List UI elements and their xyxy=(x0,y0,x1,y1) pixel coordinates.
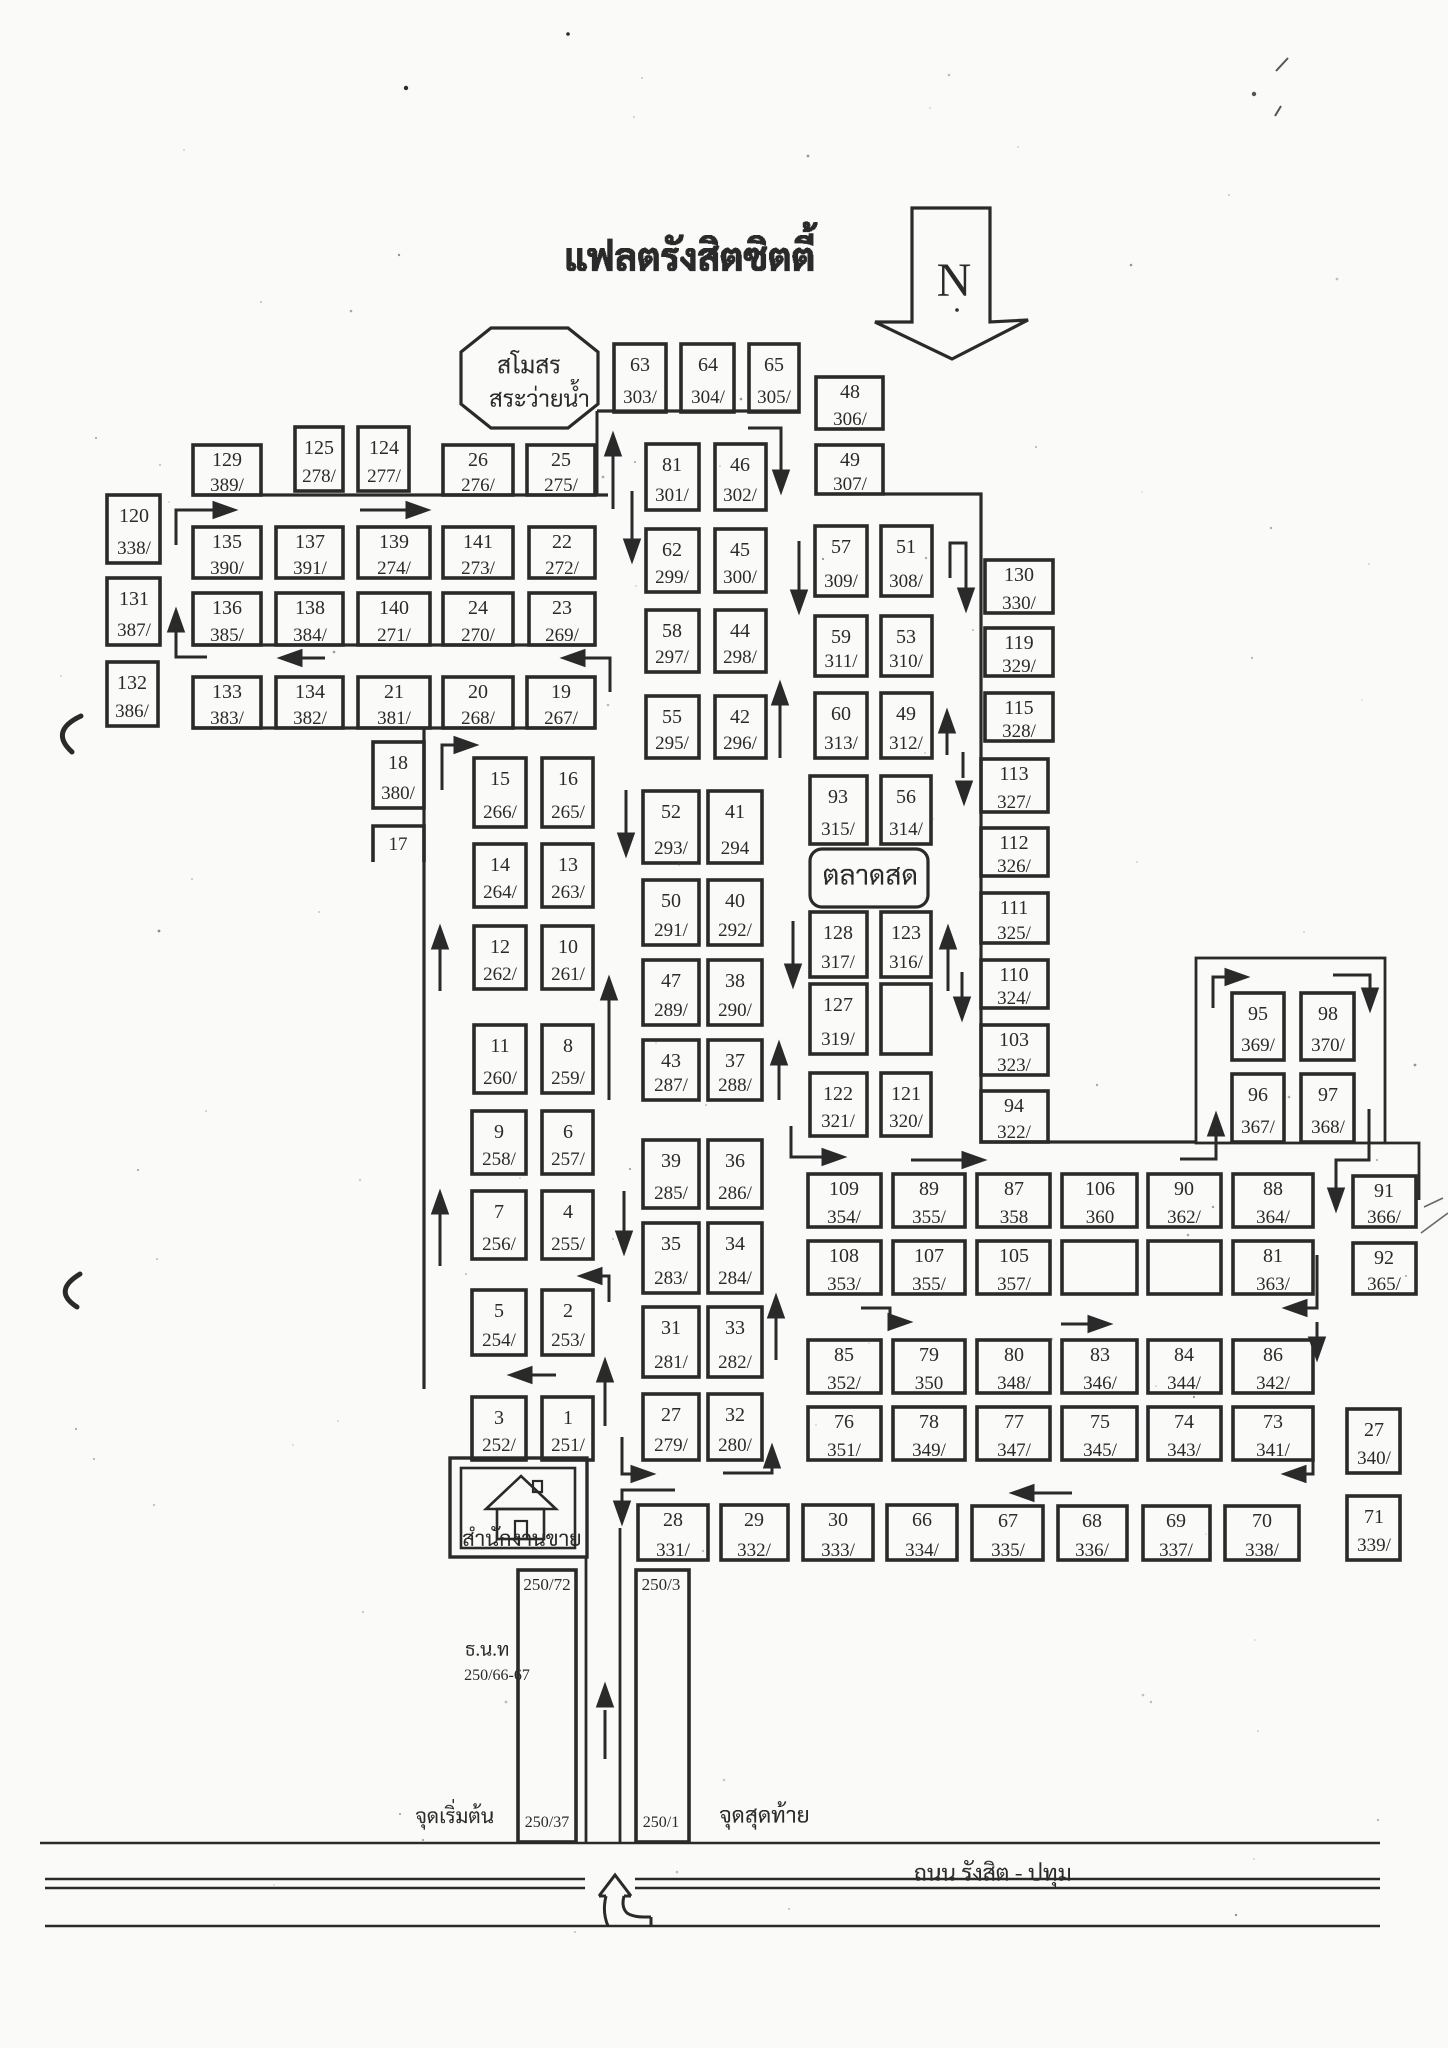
svg-text:130: 130 xyxy=(1004,564,1034,586)
svg-text:357/: 357/ xyxy=(997,1274,1032,1295)
svg-text:355/: 355/ xyxy=(912,1274,947,1295)
svg-text:386/: 386/ xyxy=(115,701,150,722)
svg-text:291/: 291/ xyxy=(654,920,689,941)
svg-text:298/: 298/ xyxy=(723,647,758,668)
svg-text:52: 52 xyxy=(661,801,681,823)
svg-text:91: 91 xyxy=(1374,1180,1394,1202)
svg-text:353/: 353/ xyxy=(827,1274,862,1295)
svg-text:284/: 284/ xyxy=(718,1268,753,1289)
svg-text:32: 32 xyxy=(725,1404,745,1426)
svg-text:382/: 382/ xyxy=(293,708,328,729)
svg-text:306/: 306/ xyxy=(833,409,868,430)
svg-text:295/: 295/ xyxy=(655,733,690,754)
svg-text:11: 11 xyxy=(490,1035,509,1057)
svg-text:312/: 312/ xyxy=(889,733,924,754)
svg-text:112: 112 xyxy=(999,832,1028,854)
svg-text:46: 46 xyxy=(730,454,750,476)
svg-text:24: 24 xyxy=(468,597,488,619)
svg-text:125: 125 xyxy=(304,437,334,459)
svg-text:250/3: 250/3 xyxy=(642,1575,681,1594)
svg-text:12: 12 xyxy=(490,936,510,958)
svg-text:90: 90 xyxy=(1174,1178,1194,1200)
svg-text:366/: 366/ xyxy=(1367,1207,1402,1228)
svg-text:250/1: 250/1 xyxy=(643,1814,679,1831)
svg-text:360: 360 xyxy=(1086,1207,1115,1228)
svg-text:113: 113 xyxy=(999,763,1028,785)
svg-text:369/: 369/ xyxy=(1241,1035,1276,1056)
svg-text:62: 62 xyxy=(662,539,682,561)
svg-text:299/: 299/ xyxy=(655,567,690,588)
svg-text:304/: 304/ xyxy=(691,387,726,408)
svg-text:6: 6 xyxy=(563,1121,573,1143)
svg-text:303/: 303/ xyxy=(623,387,658,408)
svg-text:106: 106 xyxy=(1085,1178,1115,1200)
svg-text:259/: 259/ xyxy=(551,1068,586,1089)
svg-text:78: 78 xyxy=(919,1411,939,1433)
svg-text:265/: 265/ xyxy=(551,802,586,823)
svg-text:346/: 346/ xyxy=(1083,1373,1118,1394)
svg-text:19: 19 xyxy=(551,681,571,703)
svg-text:115: 115 xyxy=(1004,697,1033,719)
svg-text:85: 85 xyxy=(834,1344,854,1366)
svg-text:9: 9 xyxy=(494,1121,504,1143)
svg-text:48: 48 xyxy=(840,381,860,403)
svg-text:80: 80 xyxy=(1004,1344,1024,1366)
svg-text:255/: 255/ xyxy=(551,1234,586,1255)
svg-text:83: 83 xyxy=(1090,1344,1110,1366)
svg-text:358: 358 xyxy=(1000,1207,1029,1228)
svg-text:120: 120 xyxy=(119,505,149,527)
svg-text:316/: 316/ xyxy=(889,952,924,973)
svg-text:300/: 300/ xyxy=(723,567,758,588)
svg-text:277/: 277/ xyxy=(367,466,402,487)
svg-text:34: 34 xyxy=(725,1233,745,1255)
svg-text:319/: 319/ xyxy=(821,1029,856,1050)
svg-text:58: 58 xyxy=(662,620,682,642)
svg-text:385/: 385/ xyxy=(210,625,245,646)
svg-text:328/: 328/ xyxy=(1002,721,1037,742)
svg-text:110: 110 xyxy=(999,964,1028,986)
svg-text:96: 96 xyxy=(1248,1084,1268,1106)
svg-text:270/: 270/ xyxy=(461,625,496,646)
svg-text:258/: 258/ xyxy=(482,1149,517,1170)
svg-text:30: 30 xyxy=(828,1509,848,1531)
svg-text:335/: 335/ xyxy=(991,1540,1026,1561)
svg-text:47: 47 xyxy=(661,970,681,992)
svg-text:81: 81 xyxy=(1263,1245,1283,1267)
svg-text:79: 79 xyxy=(919,1344,939,1366)
svg-text:97: 97 xyxy=(1318,1084,1338,1106)
svg-text:35: 35 xyxy=(661,1233,681,1255)
svg-text:68: 68 xyxy=(1082,1510,1102,1532)
svg-text:59: 59 xyxy=(831,626,851,648)
svg-text:273/: 273/ xyxy=(461,558,496,579)
svg-text:67: 67 xyxy=(998,1510,1018,1532)
svg-text:338/: 338/ xyxy=(117,538,152,559)
svg-text:8: 8 xyxy=(563,1035,573,1057)
svg-text:387/: 387/ xyxy=(117,620,152,641)
svg-text:323/: 323/ xyxy=(997,1055,1032,1076)
svg-text:325/: 325/ xyxy=(997,923,1032,944)
svg-text:86: 86 xyxy=(1263,1344,1283,1366)
svg-text:370/: 370/ xyxy=(1311,1035,1346,1056)
svg-text:339/: 339/ xyxy=(1357,1535,1392,1556)
svg-text:88: 88 xyxy=(1263,1178,1283,1200)
svg-text:60: 60 xyxy=(831,703,851,725)
svg-text:354/: 354/ xyxy=(827,1207,862,1228)
svg-text:N: N xyxy=(937,254,972,307)
svg-text:368/: 368/ xyxy=(1311,1117,1346,1138)
svg-text:384/: 384/ xyxy=(293,625,328,646)
svg-text:251/: 251/ xyxy=(551,1435,586,1456)
svg-text:283/: 283/ xyxy=(654,1268,689,1289)
svg-text:257/: 257/ xyxy=(551,1149,586,1170)
svg-text:138: 138 xyxy=(295,597,325,619)
svg-text:351/: 351/ xyxy=(827,1440,862,1461)
svg-text:84: 84 xyxy=(1174,1344,1194,1366)
svg-text:66: 66 xyxy=(912,1509,932,1531)
svg-text:391/: 391/ xyxy=(293,558,328,579)
svg-text:343/: 343/ xyxy=(1167,1440,1202,1461)
svg-text:367/: 367/ xyxy=(1241,1117,1276,1138)
svg-text:305/: 305/ xyxy=(757,387,792,408)
svg-text:43: 43 xyxy=(661,1050,681,1072)
svg-text:271/: 271/ xyxy=(377,625,412,646)
svg-text:10: 10 xyxy=(558,936,578,958)
svg-text:380/: 380/ xyxy=(381,783,416,804)
svg-text:293/: 293/ xyxy=(654,838,689,859)
svg-text:264/: 264/ xyxy=(483,882,518,903)
svg-text:65: 65 xyxy=(764,354,784,376)
svg-text:308/: 308/ xyxy=(889,571,924,592)
svg-text:33: 33 xyxy=(725,1317,745,1339)
svg-text:269/: 269/ xyxy=(545,625,580,646)
svg-text:131: 131 xyxy=(119,588,149,610)
svg-text:260/: 260/ xyxy=(483,1068,518,1089)
svg-text:281/: 281/ xyxy=(654,1352,689,1373)
svg-text:15: 15 xyxy=(490,768,510,790)
svg-text:25: 25 xyxy=(551,449,571,471)
svg-text:364/: 364/ xyxy=(1256,1207,1291,1228)
svg-text:17: 17 xyxy=(389,834,408,855)
svg-text:329/: 329/ xyxy=(1002,656,1037,677)
svg-text:313/: 313/ xyxy=(824,733,859,754)
svg-text:301/: 301/ xyxy=(655,485,690,506)
svg-text:141: 141 xyxy=(463,531,493,553)
svg-text:289/: 289/ xyxy=(654,1000,689,1021)
svg-text:140: 140 xyxy=(379,597,409,619)
svg-text:42: 42 xyxy=(730,706,750,728)
svg-text:63: 63 xyxy=(630,354,650,376)
svg-text:31: 31 xyxy=(661,1317,681,1339)
svg-text:56: 56 xyxy=(896,786,916,808)
svg-text:307/: 307/ xyxy=(833,474,868,495)
svg-text:51: 51 xyxy=(896,536,916,558)
svg-text:132: 132 xyxy=(117,672,147,694)
svg-text:49: 49 xyxy=(840,449,860,471)
svg-text:22: 22 xyxy=(552,531,572,553)
svg-text:266/: 266/ xyxy=(483,802,518,823)
svg-text:3: 3 xyxy=(494,1407,504,1429)
svg-text:36: 36 xyxy=(725,1150,745,1172)
svg-text:53: 53 xyxy=(896,626,916,648)
svg-text:267/: 267/ xyxy=(544,708,579,729)
svg-text:287/: 287/ xyxy=(654,1075,689,1096)
svg-text:75: 75 xyxy=(1090,1411,1110,1433)
svg-text:133: 133 xyxy=(212,681,242,703)
svg-text:250/72: 250/72 xyxy=(523,1575,570,1594)
svg-text:250/66-67: 250/66-67 xyxy=(464,1667,530,1684)
svg-text:381/: 381/ xyxy=(377,708,412,729)
svg-text:338/: 338/ xyxy=(1245,1540,1280,1561)
svg-text:268/: 268/ xyxy=(461,708,496,729)
svg-text:333/: 333/ xyxy=(821,1540,856,1561)
svg-text:108: 108 xyxy=(829,1245,859,1267)
svg-text:296/: 296/ xyxy=(723,733,758,754)
svg-text:127: 127 xyxy=(823,994,853,1016)
svg-text:37: 37 xyxy=(725,1050,745,1072)
svg-text:282/: 282/ xyxy=(718,1352,753,1373)
svg-text:352/: 352/ xyxy=(827,1373,862,1394)
svg-text:94: 94 xyxy=(1004,1095,1024,1117)
svg-text:55: 55 xyxy=(662,706,682,728)
svg-text:297/: 297/ xyxy=(655,647,690,668)
svg-text:294: 294 xyxy=(721,838,750,859)
svg-text:327/: 327/ xyxy=(997,792,1032,813)
svg-text:27: 27 xyxy=(1364,1419,1384,1441)
svg-text:272/: 272/ xyxy=(545,558,580,579)
svg-text:348/: 348/ xyxy=(997,1373,1032,1394)
svg-text:45: 45 xyxy=(730,539,750,561)
svg-text:70: 70 xyxy=(1252,1510,1272,1532)
svg-text:275/: 275/ xyxy=(544,475,579,496)
svg-text:69: 69 xyxy=(1166,1510,1186,1532)
svg-text:341/: 341/ xyxy=(1256,1440,1291,1461)
svg-text:23: 23 xyxy=(552,597,572,619)
svg-text:254/: 254/ xyxy=(482,1330,517,1351)
svg-text:5: 5 xyxy=(494,1300,504,1322)
svg-text:337/: 337/ xyxy=(1159,1540,1194,1561)
svg-text:261/: 261/ xyxy=(551,964,586,985)
svg-text:321/: 321/ xyxy=(821,1111,856,1132)
svg-text:124: 124 xyxy=(369,437,399,459)
svg-text:389/: 389/ xyxy=(210,475,245,496)
svg-text:14: 14 xyxy=(490,854,510,876)
svg-text:41: 41 xyxy=(725,801,745,823)
svg-text:77: 77 xyxy=(1004,1411,1024,1433)
svg-text:64: 64 xyxy=(698,354,718,376)
svg-text:330/: 330/ xyxy=(1002,593,1037,614)
svg-text:344/: 344/ xyxy=(1167,1373,1202,1394)
svg-text:49: 49 xyxy=(896,703,916,725)
svg-text:98: 98 xyxy=(1318,1003,1338,1025)
svg-text:309/: 309/ xyxy=(824,571,859,592)
svg-text:38: 38 xyxy=(725,970,745,992)
svg-text:73: 73 xyxy=(1263,1411,1283,1433)
svg-text:103: 103 xyxy=(999,1029,1029,1051)
svg-text:342/: 342/ xyxy=(1256,1373,1291,1394)
svg-text:280/: 280/ xyxy=(718,1435,753,1456)
svg-text:362/: 362/ xyxy=(1167,1207,1202,1228)
svg-text:27: 27 xyxy=(661,1404,681,1426)
svg-text:76: 76 xyxy=(834,1411,854,1433)
svg-text:50: 50 xyxy=(661,890,681,912)
svg-text:29: 29 xyxy=(744,1509,764,1531)
svg-text:345/: 345/ xyxy=(1083,1440,1118,1461)
svg-text:40: 40 xyxy=(725,890,745,912)
svg-text:81: 81 xyxy=(662,454,682,476)
svg-text:122: 122 xyxy=(823,1083,853,1105)
svg-text:326/: 326/ xyxy=(997,856,1032,877)
svg-text:340/: 340/ xyxy=(1357,1448,1392,1469)
svg-text:74: 74 xyxy=(1174,1411,1194,1433)
svg-text:262/: 262/ xyxy=(483,964,518,985)
svg-text:16: 16 xyxy=(558,768,578,790)
svg-text:137: 137 xyxy=(295,531,325,553)
svg-text:134: 134 xyxy=(295,681,325,703)
svg-text:92: 92 xyxy=(1374,1247,1394,1269)
svg-text:331/: 331/ xyxy=(656,1540,691,1561)
svg-text:365/: 365/ xyxy=(1367,1274,1402,1295)
svg-text:252/: 252/ xyxy=(482,1435,517,1456)
svg-text:107: 107 xyxy=(914,1245,944,1267)
svg-text:71: 71 xyxy=(1364,1506,1384,1528)
svg-text:105: 105 xyxy=(999,1245,1029,1267)
svg-text:322/: 322/ xyxy=(997,1122,1032,1143)
svg-text:20: 20 xyxy=(468,681,488,703)
svg-text:1: 1 xyxy=(563,1407,573,1429)
svg-text:315/: 315/ xyxy=(821,819,856,840)
svg-text:26: 26 xyxy=(468,449,488,471)
svg-text:111: 111 xyxy=(1000,897,1029,919)
svg-text:123: 123 xyxy=(891,922,921,944)
svg-text:263/: 263/ xyxy=(551,882,586,903)
svg-text:324/: 324/ xyxy=(997,988,1032,1009)
svg-text:355/: 355/ xyxy=(912,1207,947,1228)
svg-text:302/: 302/ xyxy=(723,485,758,506)
svg-text:349/: 349/ xyxy=(912,1440,947,1461)
svg-text:44: 44 xyxy=(730,620,750,642)
svg-text:128: 128 xyxy=(823,922,853,944)
svg-text:347/: 347/ xyxy=(997,1440,1032,1461)
svg-text:350: 350 xyxy=(915,1373,944,1394)
svg-text:285/: 285/ xyxy=(654,1183,689,1204)
svg-text:28: 28 xyxy=(663,1509,683,1531)
svg-text:135: 135 xyxy=(212,531,242,553)
svg-text:4: 4 xyxy=(563,1201,573,1223)
svg-text:87: 87 xyxy=(1004,1178,1024,1200)
svg-text:314/: 314/ xyxy=(889,819,924,840)
svg-text:109: 109 xyxy=(829,1178,859,1200)
svg-text:292/: 292/ xyxy=(718,920,753,941)
svg-text:288/: 288/ xyxy=(718,1075,753,1096)
svg-text:119: 119 xyxy=(1004,632,1033,654)
svg-text:93: 93 xyxy=(828,786,848,808)
svg-text:7: 7 xyxy=(494,1201,504,1223)
svg-text:129: 129 xyxy=(212,449,242,471)
svg-text:39: 39 xyxy=(661,1150,681,1172)
svg-text:276/: 276/ xyxy=(461,475,496,496)
svg-text:332/: 332/ xyxy=(737,1540,772,1561)
svg-text:334/: 334/ xyxy=(905,1540,940,1561)
svg-text:250/37: 250/37 xyxy=(525,1814,569,1831)
svg-text:57: 57 xyxy=(831,536,851,558)
svg-text:2: 2 xyxy=(563,1300,573,1322)
svg-text:21: 21 xyxy=(384,681,404,703)
svg-text:363/: 363/ xyxy=(1256,1274,1291,1295)
svg-text:383/: 383/ xyxy=(210,708,245,729)
svg-text:279/: 279/ xyxy=(654,1435,689,1456)
svg-text:95: 95 xyxy=(1248,1003,1268,1025)
svg-text:310/: 310/ xyxy=(889,651,924,672)
svg-text:320/: 320/ xyxy=(889,1111,924,1132)
svg-text:139: 139 xyxy=(379,531,409,553)
svg-text:286/: 286/ xyxy=(718,1183,753,1204)
svg-text:390/: 390/ xyxy=(210,558,245,579)
svg-text:256/: 256/ xyxy=(482,1234,517,1255)
svg-text:278/: 278/ xyxy=(302,466,337,487)
svg-text:121: 121 xyxy=(891,1083,921,1105)
svg-text:13: 13 xyxy=(558,854,578,876)
svg-text:290/: 290/ xyxy=(718,1000,753,1021)
svg-text:311/: 311/ xyxy=(824,651,858,672)
svg-text:317/: 317/ xyxy=(821,952,856,973)
svg-text:89: 89 xyxy=(919,1178,939,1200)
svg-text:336/: 336/ xyxy=(1075,1540,1110,1561)
svg-text:18: 18 xyxy=(388,752,408,774)
svg-text:136: 136 xyxy=(212,597,242,619)
svg-text:274/: 274/ xyxy=(377,558,412,579)
svg-text:253/: 253/ xyxy=(551,1330,586,1351)
